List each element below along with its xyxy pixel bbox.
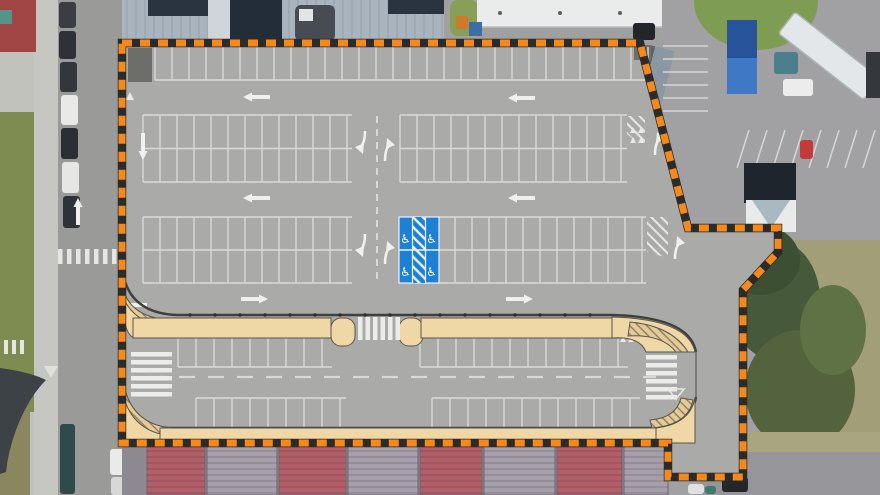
- teal-roof-detail: [0, 10, 12, 24]
- corner-structure: [128, 48, 152, 82]
- zebra-stripe: [67, 249, 72, 264]
- van-windshield: [299, 9, 313, 21]
- warehouse-roof-ribs: [557, 446, 622, 495]
- zebra-stripe: [76, 249, 81, 264]
- crosswalk-stripe: [366, 317, 371, 340]
- parked-car: [59, 2, 76, 28]
- tree-mass: [800, 285, 866, 375]
- aerial-plan-image: ♿♿♿♿: [0, 0, 880, 495]
- parked-car: [61, 128, 78, 159]
- crosswalk-stripe: [646, 395, 677, 400]
- hatched-island: [647, 217, 668, 258]
- orange-container: [456, 16, 468, 29]
- curb-dot: [438, 313, 441, 316]
- zebra-stripe: [112, 249, 117, 264]
- sidewalk-upper-band-right: [421, 318, 628, 338]
- sidewalk-bulb-out: [331, 318, 355, 346]
- curb-dot: [588, 313, 591, 316]
- zebra-stripe: [4, 340, 8, 354]
- curb-dot: [288, 313, 291, 316]
- parked-car: [62, 162, 79, 193]
- sidewalk-upper-band-left: [133, 318, 331, 338]
- warehouse-roof-ribs: [279, 446, 346, 495]
- curb-dot: [513, 313, 516, 316]
- parked-car: [633, 23, 655, 40]
- wheelchair-icon: ♿: [400, 232, 411, 246]
- left-street: [0, 0, 127, 495]
- grass-strip: [0, 112, 34, 412]
- crosswalk-stripe: [131, 392, 172, 397]
- crosswalk-stripe: [646, 379, 677, 384]
- side-road-zebra-crossing: [4, 340, 24, 354]
- parked-car: [59, 31, 76, 59]
- curb-dot: [263, 313, 266, 316]
- crosswalk-stripe: [646, 363, 677, 368]
- warehouse-roof-ribs: [420, 446, 482, 495]
- crosswalk-stripe: [396, 317, 401, 340]
- crosswalk-stripe: [131, 360, 172, 365]
- curb-dot: [488, 313, 491, 316]
- zebra-stripe: [20, 340, 24, 354]
- teal-truck-cab: [774, 52, 798, 74]
- blue-container: [469, 22, 482, 36]
- site-plan-svg: ♿♿♿♿: [0, 0, 880, 495]
- crosswalk-stripe: [131, 368, 172, 373]
- parked-car: [688, 484, 704, 494]
- warehouse-roof-ribs: [147, 446, 205, 495]
- parked-car: [60, 62, 77, 92]
- light-roof-section: [208, 0, 230, 42]
- zebra-stripe: [58, 249, 63, 264]
- blue-truck-cab: [727, 20, 757, 58]
- canopy-pole: [618, 11, 622, 15]
- zebra-stripe: [94, 249, 99, 264]
- curb-dot: [538, 313, 541, 316]
- wheelchair-icon: ♿: [426, 265, 437, 279]
- crosswalk-stripe: [646, 355, 677, 360]
- parked-car: [61, 95, 78, 125]
- crosswalk-stripe: [381, 317, 386, 340]
- zebra-stripe: [103, 249, 108, 264]
- crosswalk-stripe: [131, 384, 172, 389]
- dark-roof-section: [148, 0, 208, 16]
- curb-dot: [313, 313, 316, 316]
- warehouse-roof-ribs: [348, 446, 418, 495]
- curb-dot: [463, 313, 466, 316]
- top-roofs: [122, 0, 662, 43]
- warehouse-roofs: [122, 445, 668, 495]
- parked-car: [783, 79, 813, 96]
- crosswalk-stripe: [373, 317, 378, 340]
- curb-dot: [413, 313, 416, 316]
- crosswalk-stripe: [358, 317, 363, 340]
- crosswalk-stripe: [646, 371, 677, 376]
- curb-dot: [238, 313, 241, 316]
- warehouse-panels: [147, 446, 668, 495]
- warehouse-roof-ribs: [484, 446, 555, 495]
- zebra-stripe: [12, 340, 16, 354]
- canopy-pole: [558, 11, 562, 15]
- canopy-pole: [498, 11, 502, 15]
- left-sidewalk: [34, 0, 58, 495]
- wheelchair-icon: ♿: [426, 232, 437, 246]
- sidewalk-bulb-out: [399, 318, 423, 346]
- wheelchair-icon: ♿: [400, 265, 411, 279]
- tent-roof: [744, 163, 796, 203]
- white-canopy-roof: [477, 0, 662, 27]
- crosswalk-stripe: [388, 317, 393, 340]
- warehouse-roof-ribs: [624, 446, 668, 495]
- red-building-roof: [0, 0, 36, 52]
- crosswalk-stripe: [131, 352, 172, 357]
- curb-dot: [213, 313, 216, 316]
- parked-car: [705, 486, 716, 494]
- parked-car: [800, 140, 813, 159]
- curb-dot: [188, 313, 191, 316]
- parked-car: [60, 424, 75, 494]
- accessible-parking-bay: ♿♿♿♿: [399, 217, 439, 283]
- dark-trailer: [866, 52, 880, 98]
- curb-dot: [363, 313, 366, 316]
- curb-dot: [388, 313, 391, 316]
- crosswalk-stripe: [131, 376, 172, 381]
- warehouse-roof-ribs: [207, 446, 277, 495]
- curb-dot: [563, 313, 566, 316]
- dark-roof-section: [388, 0, 446, 14]
- zebra-stripe: [85, 249, 90, 264]
- curb-dot: [338, 313, 341, 316]
- dark-roof-section: [230, 0, 282, 40]
- blue-truck-box: [727, 58, 757, 94]
